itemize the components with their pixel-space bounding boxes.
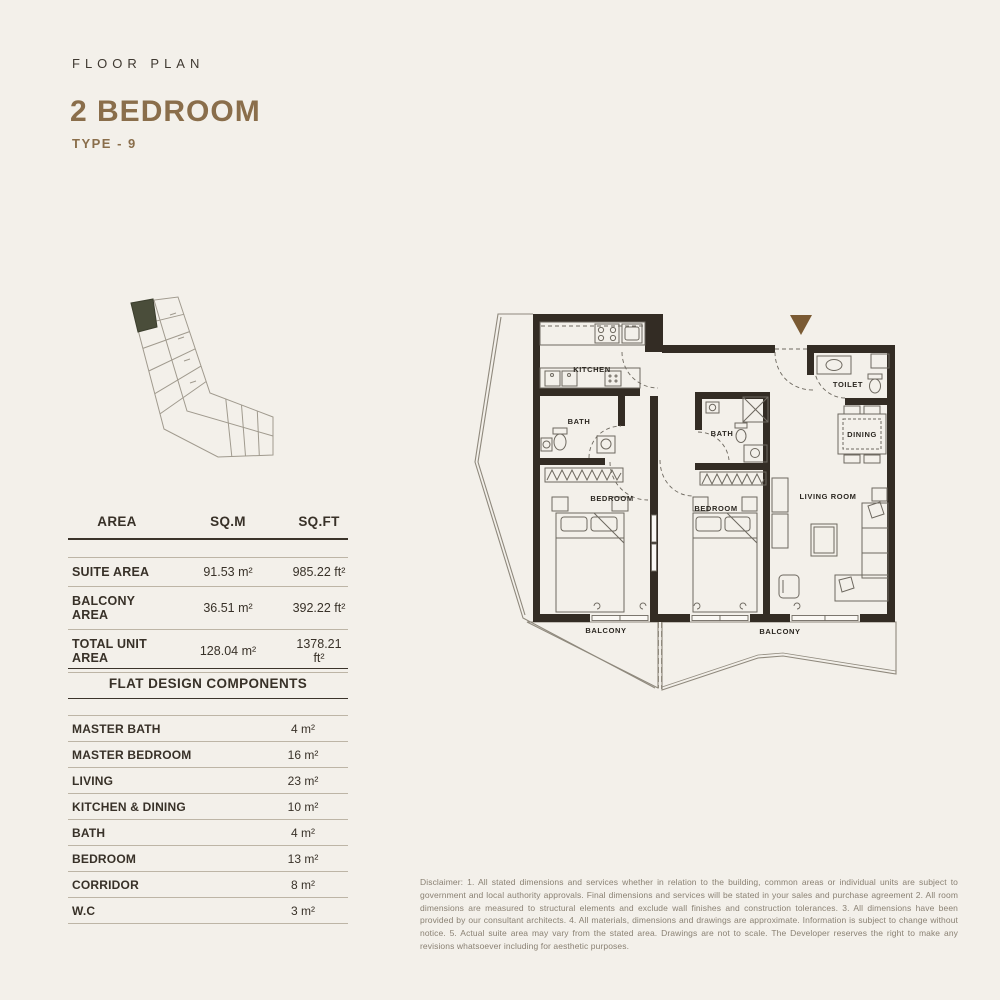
row-value: 8 m²: [258, 878, 348, 892]
balcony-divider: [659, 622, 662, 689]
sliding-door-panels: [592, 515, 858, 621]
room-label-kitchen: KITCHEN: [573, 365, 611, 374]
row-label: BEDROOM: [68, 852, 258, 866]
row-label: TOTAL UNIT AREA: [68, 637, 166, 665]
page-subtitle: TYPE - 9: [72, 136, 137, 151]
row-value: 3 m²: [258, 904, 348, 918]
row-value: 4 m²: [258, 826, 348, 840]
table-row: MASTER BATH 4 m²: [68, 716, 348, 742]
table-row: LIVING 23 m²: [68, 768, 348, 794]
row-sqft: 392.22 ft²: [290, 601, 348, 615]
keyplan-unit-highlight: [131, 299, 157, 332]
sqm-col-header: SQ.M: [166, 514, 290, 529]
table-row: BEDROOM 13 m²: [68, 846, 348, 872]
bedroom2-furniture: [693, 472, 766, 612]
table-row: BALCONY AREA 36.51 m² 392.22 ft²: [68, 587, 348, 630]
row-label: CORRIDOR: [68, 878, 258, 892]
row-label: MASTER BATH: [68, 722, 258, 736]
components-table: FLAT DESIGN COMPONENTS MASTER BATH 4 m² …: [68, 668, 348, 924]
floor-plan: KITCHEN BATH BATH TOILET DINING BEDROOM …: [455, 290, 925, 720]
row-sqm: 128.04 m²: [166, 644, 290, 658]
row-sqft: 985.22 ft²: [290, 565, 348, 579]
row-label: LIVING: [68, 774, 258, 788]
row-value: 10 m²: [258, 800, 348, 814]
area-table-header: AREA SQ.M SQ.FT: [68, 514, 348, 540]
bedroom1-furniture: [545, 468, 628, 612]
room-label-bedroom1: BEDROOM: [590, 494, 633, 503]
components-table-title: FLAT DESIGN COMPONENTS: [68, 668, 348, 699]
page-eyebrow: FLOOR PLAN: [72, 56, 204, 71]
table-row: MASTER BEDROOM 16 m²: [68, 742, 348, 768]
table-row: KITCHEN & DINING 10 m²: [68, 794, 348, 820]
sqft-col-header: SQ.FT: [290, 514, 348, 529]
room-label-balcony1: BALCONY: [585, 626, 626, 635]
row-label: SUITE AREA: [68, 565, 166, 579]
disclaimer-text: Disclaimer: 1. All stated dimensions and…: [420, 876, 958, 953]
row-sqm: 91.53 m²: [166, 565, 290, 579]
row-label: KITCHEN & DINING: [68, 800, 258, 814]
table-row: TOTAL UNIT AREA 128.04 m² 1378.21 ft²: [68, 630, 348, 673]
row-sqft: 1378.21 ft²: [290, 637, 348, 665]
keyplan: [118, 285, 283, 480]
room-label-bath2: BATH: [711, 429, 734, 438]
area-col-header: AREA: [68, 514, 166, 529]
row-label: MASTER BEDROOM: [68, 748, 258, 762]
row-value: 13 m²: [258, 852, 348, 866]
balcony-outline: [527, 622, 896, 690]
area-table: AREA SQ.M SQ.FT SUITE AREA 91.53 m² 985.…: [68, 514, 348, 673]
row-value: 4 m²: [258, 722, 348, 736]
room-label-balcony2: BALCONY: [759, 627, 800, 636]
row-value: 16 m²: [258, 748, 348, 762]
room-label-bedroom2: BEDROOM: [694, 504, 737, 513]
row-value: 23 m²: [258, 774, 348, 788]
room-label-dining: DINING: [847, 430, 877, 439]
page-title: 2 BEDROOM: [70, 95, 261, 129]
entrance-arrow-icon: [790, 315, 812, 335]
table-row: BATH 4 m²: [68, 820, 348, 846]
room-label-toilet: TOILET: [833, 380, 863, 389]
bath1-fixtures: [541, 428, 615, 453]
table-row: W.C 3 m²: [68, 898, 348, 924]
room-label-living-room: LIVING ROOM: [799, 492, 856, 501]
table-row: SUITE AREA 91.53 m² 985.22 ft²: [68, 558, 348, 587]
row-label: BALCONY AREA: [68, 594, 166, 622]
room-label-bath1: BATH: [568, 417, 591, 426]
table-row: CORRIDOR 8 m²: [68, 872, 348, 898]
row-label: BATH: [68, 826, 258, 840]
row-label: W.C: [68, 904, 258, 918]
row-sqm: 36.51 m²: [166, 601, 290, 615]
kitchen-counter: [540, 322, 645, 388]
